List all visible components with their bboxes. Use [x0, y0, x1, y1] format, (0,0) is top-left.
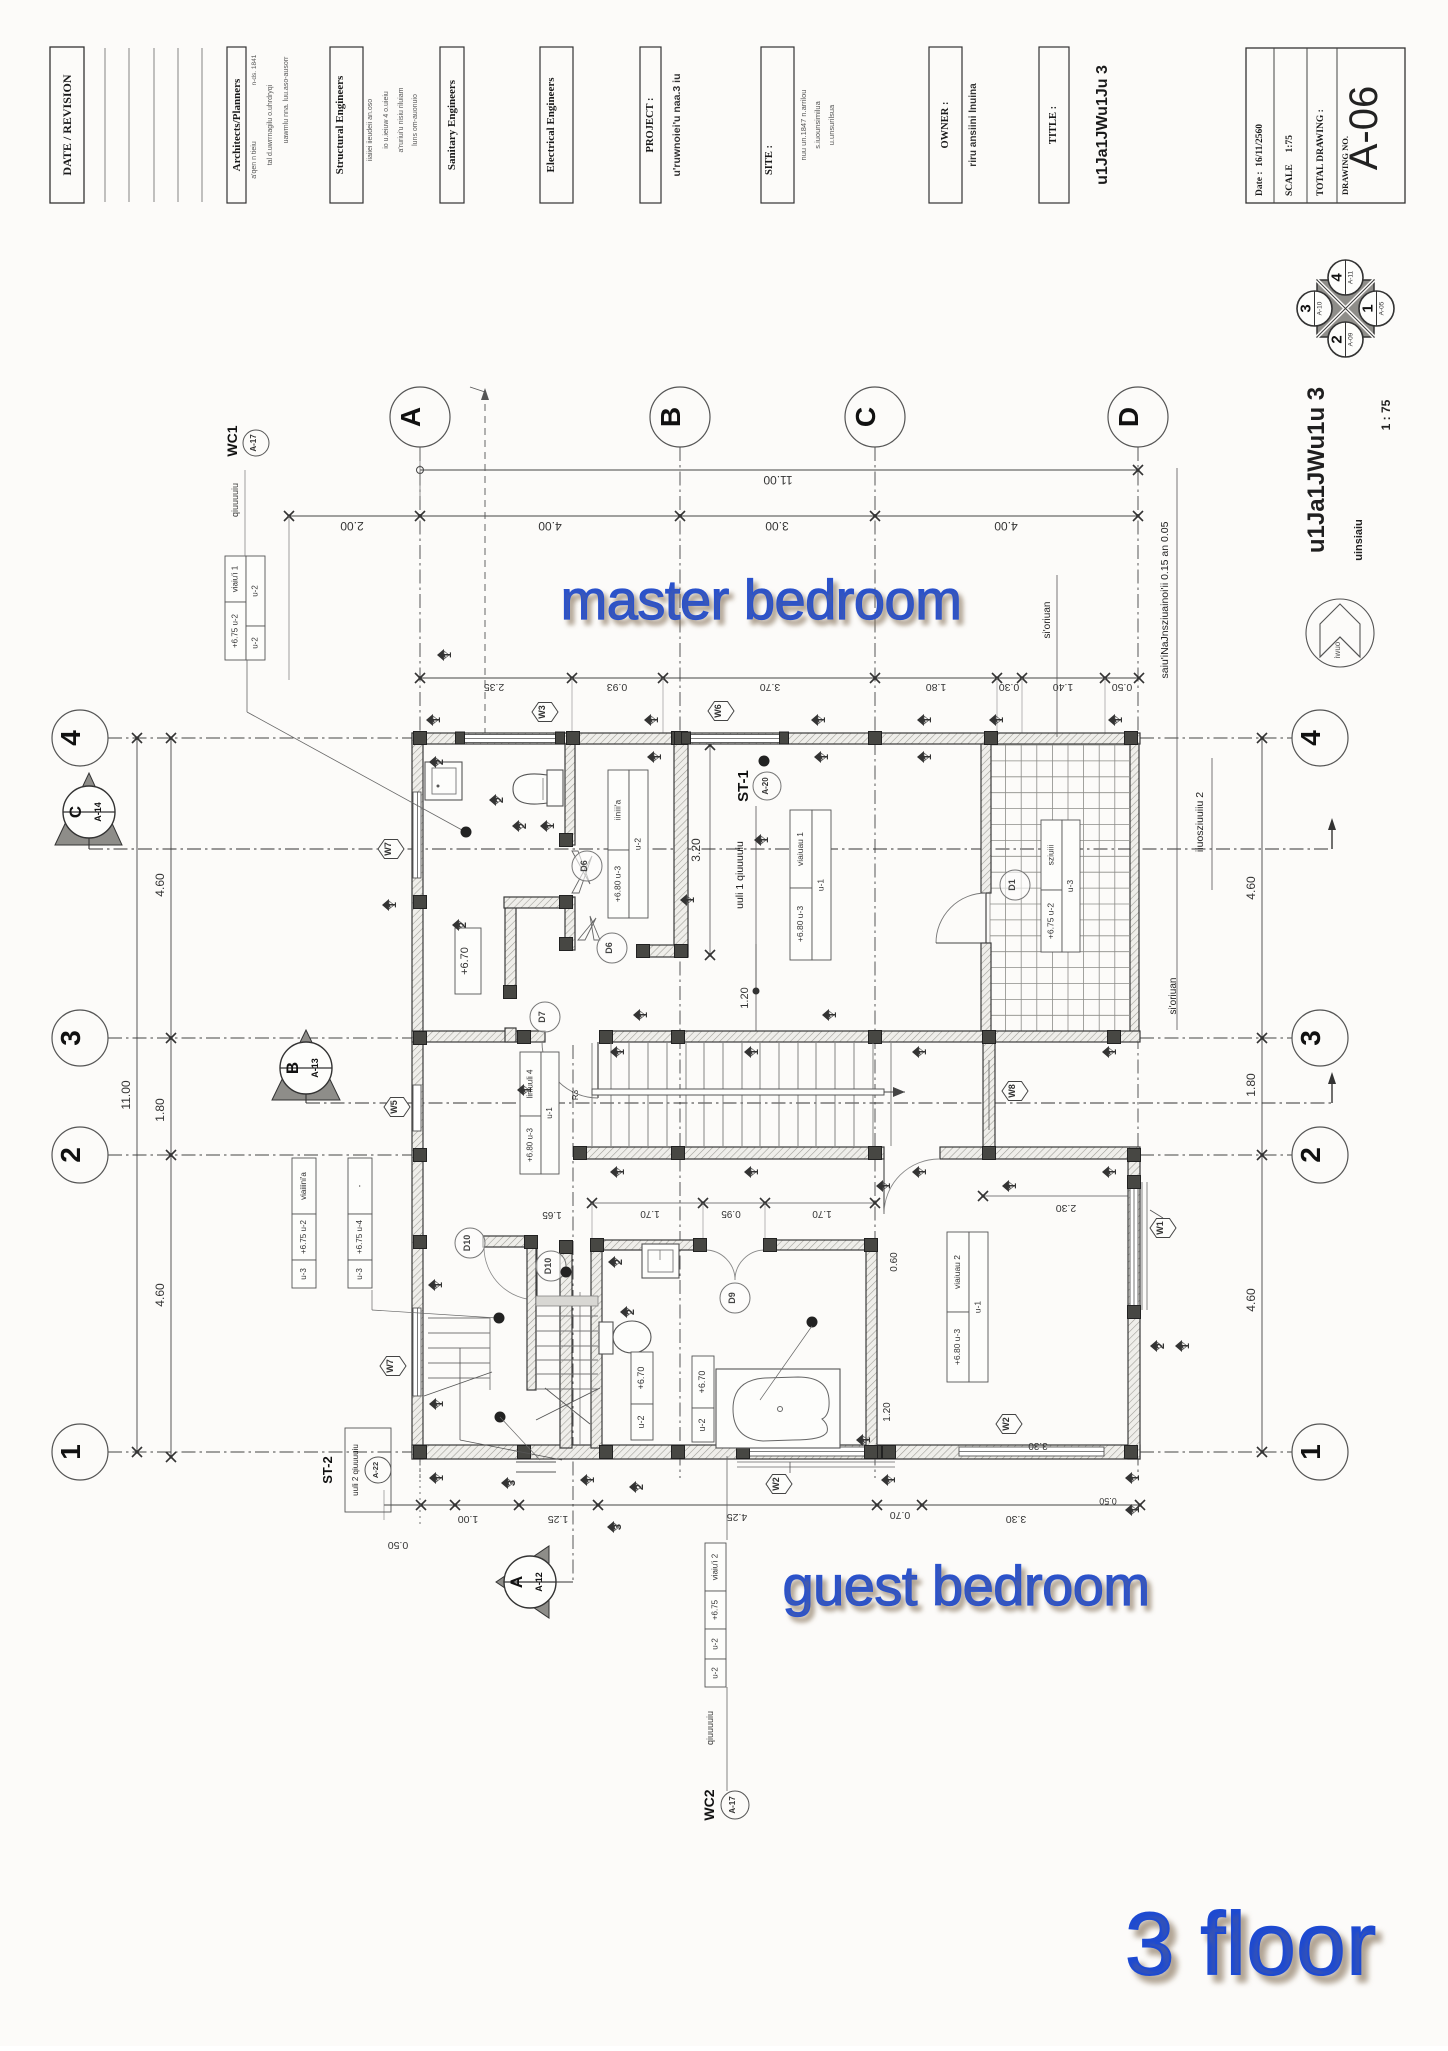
svg-text:3.70: 3.70 [760, 681, 781, 693]
svg-text:n-ds. 1841: n-ds. 1841 [251, 54, 258, 85]
svg-text:4.25: 4.25 [727, 1511, 748, 1523]
svg-text:D10: D10 [462, 1235, 472, 1252]
svg-text:1: 1 [649, 717, 661, 723]
svg-text:0.95: 0.95 [721, 1208, 741, 1219]
svg-text:u-3: u-3 [355, 1268, 364, 1280]
svg-text:1.70: 1.70 [640, 1208, 660, 1219]
svg-text:OWNER :: OWNER : [940, 102, 951, 149]
svg-text:iwuo: iwuo [1333, 641, 1342, 658]
svg-text:1: 1 [1130, 1475, 1142, 1481]
svg-text:u.unsurilsua: u.unsurilsua [827, 104, 836, 145]
svg-text:viaiiini'a: viaiiini'a [299, 1172, 308, 1200]
svg-text:1.20: 1.20 [739, 987, 751, 1008]
svg-text:+6.75 u-4: +6.75 u-4 [355, 1219, 364, 1254]
svg-text:1.65: 1.65 [542, 1209, 562, 1220]
svg-text:+6.75 u-2: +6.75 u-2 [230, 613, 239, 648]
svg-text:iiaiiei iieudeii an.oso: iiaiiei iieudeii an.oso [367, 99, 374, 161]
svg-text:1: 1 [434, 1475, 446, 1481]
svg-text:u'ruwnoiei'u naa.3 iu: u'ruwnoiei'u naa.3 iu [671, 73, 683, 176]
svg-text:saiu'iNaJnsziuainoi'ii 0.15 an: saiu'iNaJnsziuainoi'ii 0.15 an 0.05 [1159, 521, 1171, 678]
svg-text:W1: W1 [1155, 1221, 1165, 1235]
svg-text:1: 1 [1113, 717, 1125, 723]
svg-text:Electrical Engineers: Electrical Engineers [545, 77, 557, 173]
svg-text:A-11: A-11 [1348, 270, 1355, 284]
svg-text:A-09: A-09 [1348, 332, 1355, 346]
svg-text:iiniii'a: iiniii'a [612, 799, 622, 820]
svg-text:viaiu'i 2: viaiu'i 2 [710, 1553, 719, 1580]
svg-text:4.00: 4.00 [538, 519, 562, 533]
svg-text:3: 3 [506, 1480, 518, 1486]
svg-text:D10: D10 [543, 1258, 553, 1275]
svg-text:1: 1 [55, 1444, 86, 1460]
svg-text:1: 1 [1360, 304, 1377, 312]
svg-text:Date : 16/11/2560: Date : 16/11/2560 [1255, 124, 1265, 196]
svg-text:4.00: 4.00 [994, 519, 1018, 533]
svg-text:3: 3 [55, 1030, 86, 1046]
svg-text:qiuuuuiu: qiuuuuiu [705, 1711, 715, 1745]
svg-text:A: A [507, 1576, 526, 1588]
svg-text:R3: R3 [571, 1089, 580, 1100]
svg-text:uuli 1 qiuuuuiu: uuli 1 qiuuuuiu [734, 841, 746, 909]
svg-text:1: 1 [816, 717, 828, 723]
svg-text:1.80: 1.80 [153, 1098, 167, 1122]
svg-text:io u.ieiuw 4 o.uieiu: io u.ieiuw 4 o.uieiu [383, 91, 390, 149]
svg-text:0.50: 0.50 [1112, 681, 1133, 693]
svg-text:1: 1 [827, 1012, 839, 1018]
svg-text:tal d.uwrrnagilu o.uhrdryqi: tal d.uwrrnagilu o.uhrdryqi [267, 84, 274, 165]
svg-text:a'qen n tieiu: a'qen n tieiu [251, 141, 258, 179]
svg-text:A-17: A-17 [728, 1796, 737, 1814]
svg-text:2: 2 [434, 759, 446, 765]
svg-text:si'oriuan: si'oriuan [1042, 602, 1053, 639]
svg-text:u1Ja1JWu1u 3: u1Ja1JWu1u 3 [1303, 387, 1330, 553]
svg-text:master bedroom: master bedroom [561, 568, 962, 631]
svg-text:0.30: 0.30 [999, 681, 1020, 693]
svg-text:Structural Engineers: Structural Engineers [334, 75, 346, 174]
svg-text:u-3: u-3 [299, 1268, 308, 1280]
svg-text:qiuuuuiu: qiuuuuiu [230, 483, 240, 517]
svg-text:+6.70: +6.70 [459, 947, 471, 975]
svg-text:Sanitary Engineers: Sanitary Engineers [446, 79, 458, 170]
svg-text:1 : 75: 1 : 75 [1379, 399, 1393, 430]
svg-text:0.93: 0.93 [607, 681, 628, 693]
svg-text:SITE :: SITE : [764, 145, 775, 175]
svg-text:+6.80 u-3: +6.80 u-3 [952, 1329, 962, 1365]
svg-text:2: 2 [1295, 1147, 1326, 1163]
svg-text:3.20: 3.20 [689, 838, 703, 862]
svg-text:1: 1 [1107, 1169, 1119, 1175]
svg-text:2: 2 [1155, 1343, 1167, 1349]
svg-text:1: 1 [917, 1049, 929, 1055]
svg-text:4.60: 4.60 [153, 1283, 167, 1307]
svg-text:0.60: 0.60 [889, 1252, 900, 1272]
svg-text:W5: W5 [389, 1100, 399, 1114]
svg-text:1: 1 [585, 1477, 597, 1483]
svg-text:1: 1 [886, 1477, 898, 1483]
svg-text:u-2: u-2 [632, 838, 642, 851]
svg-text:W8: W8 [1007, 1084, 1017, 1098]
svg-text:4: 4 [1295, 730, 1326, 746]
svg-text:1: 1 [994, 717, 1006, 723]
svg-text:1: 1 [545, 823, 557, 829]
svg-text:2.00: 2.00 [340, 519, 364, 533]
svg-text:W7: W7 [385, 1359, 395, 1373]
svg-text:A-14: A-14 [93, 802, 103, 822]
svg-text:u-1: u-1 [815, 879, 825, 892]
svg-text:riru ansiini lnuina: riru ansiini lnuina [968, 83, 979, 167]
svg-text:1.00: 1.00 [458, 1513, 479, 1525]
svg-text:4.60: 4.60 [1244, 1288, 1258, 1312]
svg-text:1: 1 [1007, 1183, 1019, 1189]
svg-text:1.80: 1.80 [926, 681, 947, 693]
svg-text:uinsiaiu: uinsiaiu [1353, 519, 1365, 561]
svg-text:3 floor: 3 floor [1125, 1894, 1377, 1993]
svg-text:1: 1 [522, 1087, 534, 1093]
svg-text:u-2: u-2 [710, 1667, 719, 1679]
svg-text:1: 1 [922, 754, 934, 760]
svg-text:u-2: u-2 [250, 637, 259, 649]
svg-text:2: 2 [625, 1309, 637, 1315]
svg-text:A-12: A-12 [534, 1572, 544, 1592]
svg-text:4.60: 4.60 [153, 873, 167, 897]
svg-text:D6: D6 [604, 942, 614, 954]
svg-text:si'oriuan: si'oriuan [1168, 978, 1179, 1015]
svg-text:D7: D7 [537, 1011, 547, 1023]
svg-text:1: 1 [1107, 1049, 1119, 1055]
svg-text:1: 1 [819, 754, 831, 760]
svg-text:1: 1 [433, 1282, 445, 1288]
svg-text:1.20: 1.20 [882, 1402, 893, 1422]
svg-text:+6.75: +6.75 [710, 1599, 719, 1620]
svg-text:A-17: A-17 [249, 434, 258, 452]
svg-text:viaiuau 2: viaiuau 2 [952, 1255, 962, 1289]
svg-text:2.30: 2.30 [1056, 1202, 1077, 1214]
svg-text:3: 3 [1295, 1030, 1326, 1046]
svg-text:u-2: u-2 [250, 585, 259, 597]
svg-text:1: 1 [917, 1169, 929, 1175]
svg-text:A-20: A-20 [761, 777, 770, 795]
svg-text:1: 1 [434, 1401, 446, 1407]
svg-text:nuu un.1847 n.arrilou: nuu un.1847 n.arrilou [799, 90, 808, 161]
svg-text:1.25: 1.25 [548, 1513, 569, 1525]
svg-text:A-06: A-06 [1342, 86, 1386, 171]
svg-text:1: 1 [615, 1049, 627, 1055]
svg-text:1: 1 [638, 1012, 650, 1018]
svg-text:u-3: u-3 [1065, 880, 1075, 893]
svg-text:+6.75 u-2: +6.75 u-2 [299, 1219, 308, 1254]
svg-text:2.35: 2.35 [484, 681, 505, 693]
svg-text:1: 1 [922, 717, 934, 723]
svg-text:+6.75 u-2: +6.75 u-2 [1045, 903, 1055, 939]
svg-text:C: C [850, 407, 881, 427]
svg-text:2: 2 [457, 922, 469, 928]
svg-text:1.40: 1.40 [1053, 681, 1074, 693]
svg-text:3.00: 3.00 [765, 519, 789, 533]
svg-text:4.60: 4.60 [1244, 876, 1258, 900]
svg-text:1.80: 1.80 [1244, 1073, 1258, 1097]
svg-text:1: 1 [1180, 1343, 1192, 1349]
svg-text:3.30: 3.30 [1028, 1440, 1048, 1451]
svg-text:TOTAL DRAWING :: TOTAL DRAWING : [1316, 109, 1326, 196]
svg-text:1: 1 [387, 902, 399, 908]
svg-text:u-2: u-2 [697, 1418, 707, 1431]
svg-text:TITLE :: TITLE : [1048, 106, 1059, 144]
svg-text:+6.80 u-3: +6.80 u-3 [795, 906, 805, 942]
svg-text:D9: D9 [727, 1292, 737, 1304]
svg-text:1: 1 [685, 897, 697, 903]
svg-text:+6.80 u-3: +6.80 u-3 [612, 866, 622, 902]
svg-text:a'ruriui'u nisiu riluiam: a'ruriui'u nisiu riluiam [398, 87, 405, 152]
svg-text:Architects/Planners: Architects/Planners [231, 78, 243, 171]
svg-text:0.70: 0.70 [890, 1509, 911, 1521]
svg-text:+6.70: +6.70 [697, 1371, 707, 1394]
svg-text:WC2: WC2 [701, 1789, 717, 1820]
svg-text:u1Ja1JWu1Ju 3: u1Ja1JWu1Ju 3 [1094, 65, 1111, 185]
svg-text:guest bedroom: guest bedroom [782, 1554, 1149, 1617]
svg-text:W3: W3 [537, 705, 547, 719]
svg-text:0.50: 0.50 [388, 1539, 409, 1551]
svg-text:3.30: 3.30 [1006, 1513, 1027, 1525]
svg-text:1: 1 [749, 1049, 761, 1055]
svg-text:1: 1 [1295, 1444, 1326, 1460]
svg-text:D6: D6 [579, 860, 589, 872]
svg-text:2: 2 [494, 797, 506, 803]
svg-text:ST-2: ST-2 [320, 1456, 335, 1483]
svg-text:0.50: 0.50 [1099, 1496, 1117, 1506]
svg-text:A-10: A-10 [1317, 301, 1324, 315]
svg-text:D1: D1 [1007, 879, 1017, 891]
svg-text:1: 1 [861, 1437, 873, 1443]
svg-text:u-2: u-2 [636, 1415, 646, 1428]
svg-text:W6: W6 [713, 704, 723, 718]
svg-text:1: 1 [652, 754, 664, 760]
svg-text:+6.80 u-3: +6.80 u-3 [525, 1127, 534, 1162]
svg-text:3: 3 [1298, 304, 1315, 312]
svg-text:D: D [1113, 407, 1144, 427]
svg-text:2: 2 [517, 823, 529, 829]
svg-text:W7: W7 [383, 842, 393, 856]
svg-text:W2: W2 [1001, 1417, 1011, 1431]
svg-text:u-1: u-1 [545, 1107, 554, 1119]
svg-text:4: 4 [1329, 273, 1346, 282]
svg-text:1: 1 [881, 1183, 893, 1189]
svg-text:u-1: u-1 [972, 1301, 982, 1314]
svg-text:2: 2 [634, 1484, 646, 1490]
svg-text:2: 2 [1329, 335, 1346, 343]
svg-text:B: B [655, 407, 686, 427]
svg-text:viaiuau 1: viaiuau 1 [795, 832, 805, 866]
svg-text:1: 1 [615, 1169, 627, 1175]
svg-text:1: 1 [431, 717, 443, 723]
svg-text:11.00: 11.00 [119, 1080, 133, 1109]
svg-text:uuli 2 qiuuuuiu: uuli 2 qiuuuuiu [351, 1444, 360, 1496]
svg-text:WC1: WC1 [224, 425, 240, 456]
svg-text:DATE / REVISION: DATE / REVISION [60, 74, 74, 175]
svg-text:s.iuounsimilua: s.iuounsimilua [813, 100, 822, 148]
svg-text:luns om-auonuio: luns om-auonuio [412, 94, 419, 146]
svg-text:1.70: 1.70 [812, 1208, 832, 1219]
svg-text:sziuiii: sziuiii [1045, 844, 1055, 865]
svg-text:2: 2 [613, 1259, 625, 1265]
svg-text:A-13: A-13 [310, 1058, 320, 1078]
svg-text:A-22: A-22 [371, 1462, 380, 1478]
svg-text:1: 1 [1130, 1507, 1142, 1513]
svg-text:+6.70: +6.70 [636, 1367, 646, 1390]
svg-text:1: 1 [442, 652, 454, 658]
svg-text:11.00: 11.00 [763, 473, 792, 487]
svg-text:viaiu'i 1: viaiu'i 1 [230, 565, 239, 592]
svg-text:3: 3 [612, 1524, 624, 1530]
svg-text:SCALE 1:75: SCALE 1:75 [1285, 135, 1295, 196]
svg-text:ST-1: ST-1 [735, 770, 752, 802]
svg-text:4: 4 [55, 730, 86, 746]
svg-text:-: - [355, 1184, 364, 1187]
svg-text:W2: W2 [771, 1477, 781, 1491]
svg-text:u-2: u-2 [710, 1638, 719, 1650]
svg-text:iiuosziuuiiu 2: iiuosziuuiiu 2 [1194, 792, 1206, 852]
svg-text:A-05: A-05 [1379, 301, 1386, 315]
svg-text:2: 2 [55, 1147, 86, 1163]
svg-text:PROJECT :: PROJECT : [645, 98, 656, 153]
svg-text:C: C [66, 806, 85, 818]
svg-text:1: 1 [749, 1169, 761, 1175]
svg-text:B: B [283, 1062, 302, 1074]
svg-text:A: A [395, 407, 426, 427]
svg-text:1: 1 [759, 837, 771, 843]
svg-text:uawrnlu nna. luu.aso-ausorr: uawrnlu nna. luu.aso-ausorr [283, 56, 290, 143]
